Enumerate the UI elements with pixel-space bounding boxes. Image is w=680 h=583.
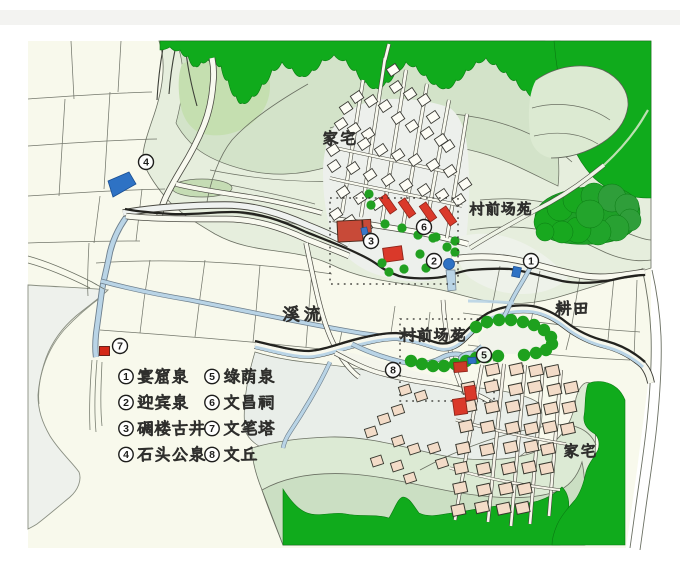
svg-text:6: 6: [421, 222, 427, 234]
svg-text:7: 7: [209, 423, 215, 435]
svg-text:8: 8: [209, 449, 215, 461]
svg-text:1: 1: [123, 371, 129, 383]
svg-text:2: 2: [123, 397, 129, 409]
svg-text:3: 3: [368, 236, 374, 248]
svg-text:8: 8: [390, 365, 396, 377]
svg-text:2: 2: [431, 256, 437, 268]
svg-text:4: 4: [143, 157, 149, 169]
svg-text:6: 6: [209, 397, 215, 409]
svg-text:3: 3: [123, 423, 129, 435]
svg-text:5: 5: [209, 371, 215, 383]
svg-text:4: 4: [123, 449, 129, 461]
svg-text:5: 5: [481, 350, 487, 362]
svg-text:7: 7: [117, 341, 123, 353]
svg-text:1: 1: [528, 256, 534, 268]
